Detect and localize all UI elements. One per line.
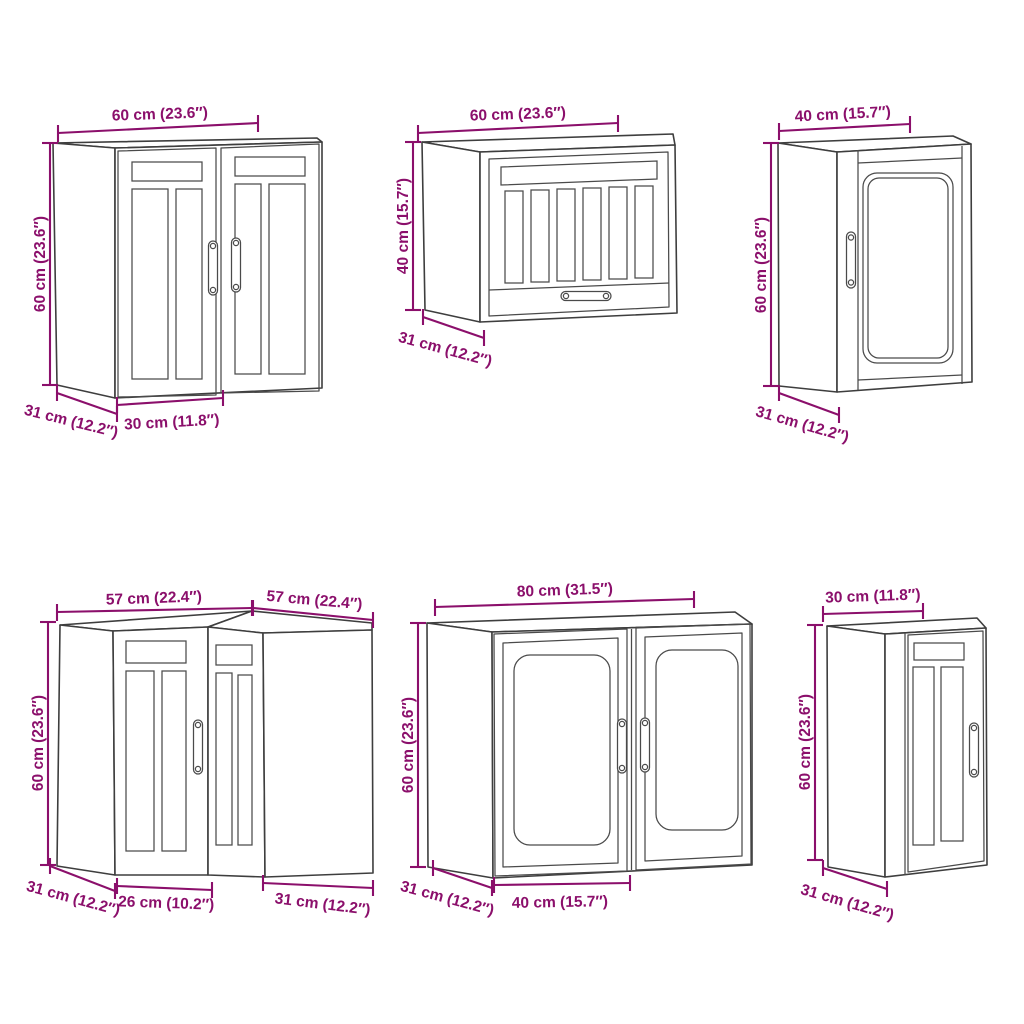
cabinet-side-face xyxy=(57,625,115,875)
width-right-label: 57 cm (22.4″) xyxy=(266,588,363,613)
cabinet-set-dimension-sheet: 60 cm (23.6″) 60 cm (23.6″) 31 cm (12.2″… xyxy=(0,0,1024,1024)
width-left-label: 57 cm (22.4″) xyxy=(105,588,202,608)
height-label: 40 cm (15.7″) xyxy=(395,178,412,274)
cabinet-side-face xyxy=(827,626,885,877)
door-width-label: 30 cm (11.8″) xyxy=(124,412,220,434)
diagram-wall-cabinet-two-doors: 60 cm (23.6″) 60 cm (23.6″) 31 cm (12.2″… xyxy=(20,85,370,450)
door-handle-icon xyxy=(641,718,650,772)
cabinet-body xyxy=(778,136,972,392)
width-label: 30 cm (11.8″) xyxy=(825,586,921,606)
cabinet-body xyxy=(827,618,987,877)
cabinet-body xyxy=(57,611,373,877)
door-handle-icon xyxy=(232,238,241,292)
door-handle-icon xyxy=(194,720,203,774)
height-label: 60 cm (23.6″) xyxy=(753,217,770,313)
cabinet-body xyxy=(427,612,752,878)
dimension-height: 40 cm (15.7″) xyxy=(395,142,421,310)
dimension-width: 40 cm (15.7″) xyxy=(779,104,910,140)
dimension-height: 60 cm (23.6″) xyxy=(753,143,779,386)
door-width-label: 26 cm (10.2″) xyxy=(118,893,215,913)
dimension-width: 80 cm (31.5″) xyxy=(435,580,694,616)
depth-left-label: 31 cm (12.2″) xyxy=(25,878,122,919)
width-label: 60 cm (23.6″) xyxy=(111,104,208,124)
dimension-width: 60 cm (23.6″) xyxy=(58,104,258,142)
dimension-depth-right: 31 cm (12.2″) xyxy=(263,875,373,919)
diagram-wall-cabinet-two-glass-doors: 80 cm (31.5″) 60 cm (23.6″) 31 cm (12.2″… xyxy=(395,555,780,975)
depth-label: 31 cm (12.2″) xyxy=(397,329,494,370)
cabinet-side-face xyxy=(427,623,493,878)
width-label: 80 cm (31.5″) xyxy=(516,580,613,600)
door-handle-icon xyxy=(618,719,627,773)
diagram-wall-cabinet-narrow: 30 cm (11.8″) 60 cm (23.6″) 31 cm (12.2″… xyxy=(775,555,1024,975)
depth-label: 31 cm (12.2″) xyxy=(754,403,851,446)
cabinet-side-panel xyxy=(263,630,373,877)
door-handle-icon xyxy=(970,723,979,777)
dimension-door-width: 40 cm (15.7″) xyxy=(494,875,630,912)
door-handle-icon xyxy=(561,292,611,301)
cabinet-side-face xyxy=(422,142,480,322)
depth-right-label: 31 cm (12.2″) xyxy=(274,890,372,919)
diagram-wall-cabinet-glass-door: 40 cm (15.7″) 60 cm (23.6″) 31 cm (12.2″… xyxy=(725,85,1024,455)
door-handle-icon xyxy=(209,241,218,295)
angled-door xyxy=(208,627,265,877)
width-label: 60 cm (23.6″) xyxy=(469,104,566,124)
dimension-width: 30 cm (11.8″) xyxy=(823,586,923,622)
depth-label: 31 cm (12.2″) xyxy=(22,402,119,442)
cabinet-side-face xyxy=(778,143,837,392)
height-label: 60 cm (23.6″) xyxy=(797,694,814,790)
diagram-wall-cabinet-horizontal: 60 cm (23.6″) 40 cm (15.7″) 31 cm (12.2″… xyxy=(385,85,715,395)
height-label: 60 cm (23.6″) xyxy=(400,697,417,793)
cabinet-body xyxy=(53,138,322,398)
dimension-height: 60 cm (23.6″) xyxy=(797,625,823,860)
door-handle-icon xyxy=(847,232,856,288)
cabinet-side-face xyxy=(53,143,115,398)
door-width-label: 40 cm (15.7″) xyxy=(512,893,608,912)
height-label: 60 cm (23.6″) xyxy=(32,216,49,312)
height-label: 60 cm (23.6″) xyxy=(30,695,47,791)
cabinet-body xyxy=(422,134,677,322)
diagram-corner-wall-cabinet: 57 cm (22.4″) 57 cm (22.4″) 60 cm (23.6″… xyxy=(20,555,400,965)
dimension-height: 60 cm (23.6″) xyxy=(30,622,56,865)
left-door xyxy=(113,627,208,875)
dimension-depth: 31 cm (12.2″) xyxy=(754,385,851,446)
width-label: 40 cm (15.7″) xyxy=(794,104,891,126)
dimension-door-width: 26 cm (10.2″) xyxy=(117,878,215,914)
dimension-height: 60 cm (23.6″) xyxy=(400,623,426,867)
